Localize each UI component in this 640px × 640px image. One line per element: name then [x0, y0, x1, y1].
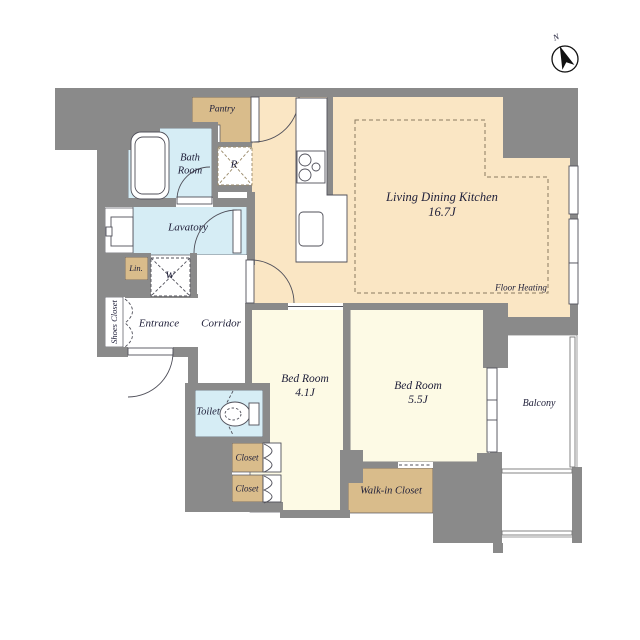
- lavatory-door-leaf: [233, 210, 241, 253]
- toilet-bowl: [220, 402, 250, 426]
- bedroom-large-window: [487, 368, 497, 452]
- bath-room-label: Bath Room: [167, 152, 213, 177]
- bedroom-large-name: Bed Room: [394, 380, 442, 394]
- corridor-label: Corridor: [201, 317, 241, 330]
- floor-heating-label: Floor Heating: [495, 283, 547, 294]
- bedroom-large-size: 5.5J: [394, 394, 442, 408]
- lavatory-label: Lavatory: [168, 221, 208, 234]
- vanity-tab: [106, 227, 112, 236]
- refrigerator-label: R: [231, 158, 238, 171]
- ldk-name: Living Dining Kitchen: [386, 190, 498, 205]
- ldk-label: Living Dining Kitchen 16.7J: [386, 190, 498, 220]
- toilet-label: Toilet: [196, 407, 220, 420]
- floor-plan-drawing: [0, 0, 640, 640]
- floor-plan: Living Dining Kitchen 16.7J Floor Heatin…: [0, 0, 640, 640]
- closet-lower-label: Closet: [235, 484, 258, 495]
- bedroom-small-label: Bed Room 4.1J: [281, 373, 329, 401]
- shoes-closet-label: Shoes Closet: [109, 300, 119, 344]
- balcony-label: Balcony: [523, 398, 556, 410]
- pantry-door-leaf: [251, 97, 259, 142]
- bathtub: [131, 132, 169, 199]
- bath-room-text: Bath Room: [167, 152, 213, 177]
- toilet-tank: [249, 403, 259, 425]
- bath-door-leaf: [177, 197, 212, 204]
- vanity-unit: [111, 217, 133, 246]
- linen-label: Lin.: [129, 263, 142, 273]
- balcony-floor: [497, 335, 577, 537]
- ldk-door-leaf: [246, 260, 254, 303]
- washer-label: W: [165, 269, 174, 282]
- entrance-door-arc: [128, 352, 173, 397]
- bedroom-small-size: 4.1J: [281, 387, 329, 401]
- bedroom-large-label: Bed Room 5.5J: [394, 380, 442, 408]
- entrance-label: Entrance: [139, 317, 179, 330]
- kitchen-sink: [299, 212, 323, 246]
- pantry-label: Pantry: [209, 104, 235, 115]
- compass: [552, 44, 578, 72]
- walk-in-closet-label: Walk-in Closet: [360, 486, 422, 499]
- closet-upper-label: Closet: [235, 453, 258, 464]
- bedroom-small-name: Bed Room: [281, 373, 329, 387]
- ldk-size: 16.7J: [386, 205, 498, 220]
- entrance-door-leaf: [128, 348, 173, 355]
- ldk-window-2: [569, 219, 578, 263]
- ldk-window-1: [569, 166, 578, 214]
- ldk-window-3: [569, 263, 578, 304]
